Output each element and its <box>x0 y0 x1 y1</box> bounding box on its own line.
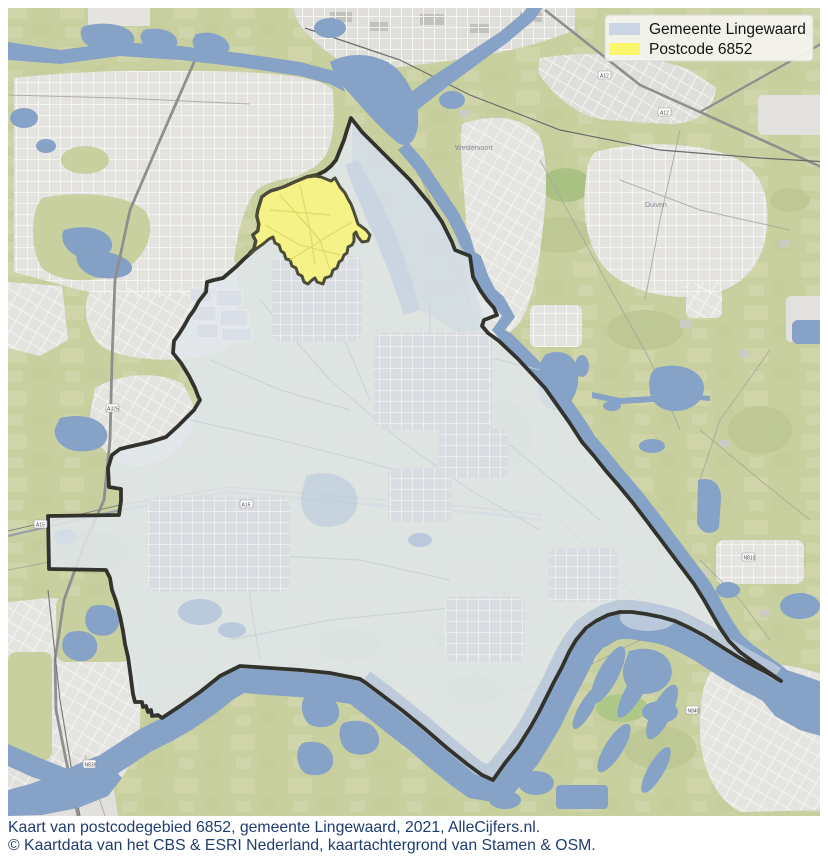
svg-text:A15: A15 <box>242 503 251 509</box>
svg-text:A325: A325 <box>107 407 119 413</box>
svg-text:© Kaartdata van het CBS & ESRI: © Kaartdata van het CBS & ESRI Nederland… <box>8 837 596 854</box>
svg-text:Duiven: Duiven <box>645 202 667 209</box>
svg-text:A12: A12 <box>600 74 609 80</box>
svg-text:N810: N810 <box>744 556 756 562</box>
svg-text:Westervoort: Westervoort <box>455 145 493 152</box>
svg-text:N840: N840 <box>688 709 700 715</box>
svg-text:A12: A12 <box>660 111 669 117</box>
svg-text:N839: N839 <box>85 763 97 769</box>
svg-text:Kaart van postcodegebied 6852,: Kaart van postcodegebied 6852, gemeente … <box>8 819 540 836</box>
svg-text:Postcode 6852: Postcode 6852 <box>649 41 752 58</box>
svg-text:A15: A15 <box>36 523 45 529</box>
svg-text:Gemeente Lingewaard: Gemeente Lingewaard <box>649 21 806 38</box>
